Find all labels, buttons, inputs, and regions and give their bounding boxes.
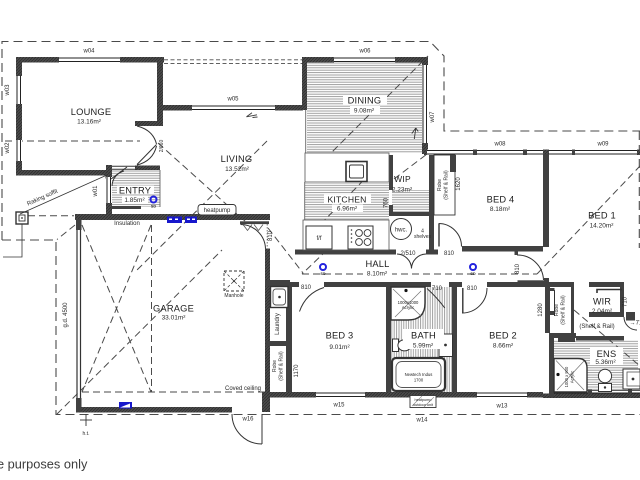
svg-text:(Shelf & Rail): (Shelf & Rail) — [444, 170, 450, 200]
svg-text:SD: SD — [470, 272, 476, 276]
svg-text:Robe: Robe — [272, 360, 278, 372]
svg-text:outdoor unit: outdoor unit — [413, 403, 434, 407]
svg-text:13.16m²: 13.16m² — [77, 119, 102, 126]
svg-text:1620: 1620 — [456, 177, 462, 191]
svg-text:w16: w16 — [241, 417, 254, 423]
svg-text:shelves: shelves — [414, 234, 431, 240]
svg-text:GARAGE: GARAGE — [153, 304, 194, 314]
svg-text:(Shelf & Rail): (Shelf & Rail) — [279, 351, 285, 381]
svg-text:2/660: 2/660 — [159, 140, 165, 153]
svg-text:f/f: f/f — [316, 236, 321, 242]
svg-text:w08: w08 — [493, 142, 506, 148]
svg-text:BED 3: BED 3 — [326, 331, 354, 341]
svg-text:WIP: WIP — [394, 174, 411, 184]
svg-text:13.52m²: 13.52m² — [225, 166, 250, 173]
svg-text:810: 810 — [444, 251, 455, 257]
svg-text:w02: w02 — [5, 142, 11, 155]
svg-text:e purposes only: e purposes only — [0, 457, 88, 472]
svg-text:Acrylic: Acrylic — [402, 305, 414, 310]
svg-text:810: 810 — [515, 263, 521, 274]
svg-text:810: 810 — [467, 286, 478, 292]
svg-text:w13: w13 — [495, 404, 508, 410]
svg-text:LOUNGE: LOUNGE — [71, 107, 111, 117]
svg-text:w04: w04 — [82, 49, 95, 55]
svg-text:33.01m²: 33.01m² — [162, 315, 187, 322]
svg-text:9.01m²: 9.01m² — [329, 344, 350, 351]
svg-text:Insulation: Insulation — [114, 221, 140, 227]
svg-text:1700: 1700 — [414, 378, 424, 383]
svg-text:ENTRY: ENTRY — [119, 186, 151, 196]
svg-text:Robe: Robe — [437, 179, 443, 191]
svg-text:heatpump: heatpump — [204, 208, 231, 214]
svg-text:BED 1: BED 1 — [588, 211, 616, 221]
svg-text:1000 x 900: 1000 x 900 — [564, 366, 569, 387]
svg-text:5.99m²: 5.99m² — [413, 343, 434, 350]
svg-text:w15: w15 — [332, 403, 345, 409]
svg-text:8.10m²: 8.10m² — [367, 271, 388, 278]
svg-text:Robe: Robe — [554, 304, 560, 316]
svg-text:8.18m²: 8.18m² — [490, 206, 511, 213]
svg-text:w01: w01 — [93, 185, 99, 198]
svg-text:w05: w05 — [226, 97, 239, 103]
svg-text:heatpump: heatpump — [415, 398, 432, 402]
svg-text:(Shelf & Rail): (Shelf & Rail) — [579, 324, 614, 330]
svg-text:SD: SD — [320, 272, 326, 276]
svg-text:KITCHEN: KITCHEN — [327, 195, 366, 205]
svg-text:Coved ceiling: Coved ceiling — [225, 386, 261, 392]
svg-text:h.t.: h.t. — [83, 431, 90, 437]
svg-text:1170: 1170 — [294, 364, 300, 378]
svg-text:710: 710 — [432, 286, 443, 292]
svg-text:BED 4: BED 4 — [487, 195, 515, 205]
svg-text:hwc.: hwc. — [395, 228, 408, 234]
svg-text:710: 710 — [623, 296, 629, 307]
svg-text:810: 810 — [268, 230, 274, 241]
svg-text:Acrylic: Acrylic — [570, 371, 575, 383]
svg-text:w07: w07 — [430, 111, 436, 124]
svg-text:9.08m²: 9.08m² — [354, 108, 375, 115]
svg-text:BATH: BATH — [411, 331, 436, 341]
svg-text:Manhole: Manhole — [224, 293, 243, 299]
svg-text:(Shelf & Rail): (Shelf & Rail) — [561, 295, 567, 325]
svg-text:2.23m²: 2.23m² — [392, 187, 413, 194]
svg-text:g.d. 4500: g.d. 4500 — [63, 302, 69, 328]
svg-text:Newtech Indus: Newtech Indus — [405, 372, 433, 377]
svg-text:WIR: WIR — [593, 297, 611, 307]
svg-text:1280: 1280 — [538, 303, 544, 317]
svg-text:w09: w09 — [596, 142, 609, 148]
svg-text:w14: w14 — [415, 418, 428, 424]
svg-text:760: 760 — [384, 197, 390, 208]
svg-text:→71: →71 — [630, 321, 640, 327]
svg-text:w03: w03 — [5, 84, 11, 97]
svg-text:14.20m²: 14.20m² — [590, 223, 615, 230]
svg-text:DINING: DINING — [348, 96, 382, 106]
svg-text:810: 810 — [301, 285, 312, 291]
svg-text:2/510: 2/510 — [400, 251, 416, 257]
svg-text:BED 2: BED 2 — [489, 331, 517, 341]
svg-text:8.66m²: 8.66m² — [493, 343, 514, 350]
svg-text:w06: w06 — [358, 49, 371, 55]
svg-text:Laundry: Laundry — [275, 313, 281, 335]
svg-text:HALL: HALL — [365, 259, 389, 269]
svg-text:SD: SD — [151, 205, 157, 209]
svg-text:2.04m²: 2.04m² — [592, 308, 613, 315]
svg-text:ENS: ENS — [597, 349, 617, 359]
svg-text:LIVING: LIVING — [221, 154, 253, 164]
svg-text:1.85m²: 1.85m² — [124, 197, 145, 204]
svg-text:6.96m²: 6.96m² — [337, 206, 358, 213]
svg-text:5.36m²: 5.36m² — [595, 359, 616, 366]
